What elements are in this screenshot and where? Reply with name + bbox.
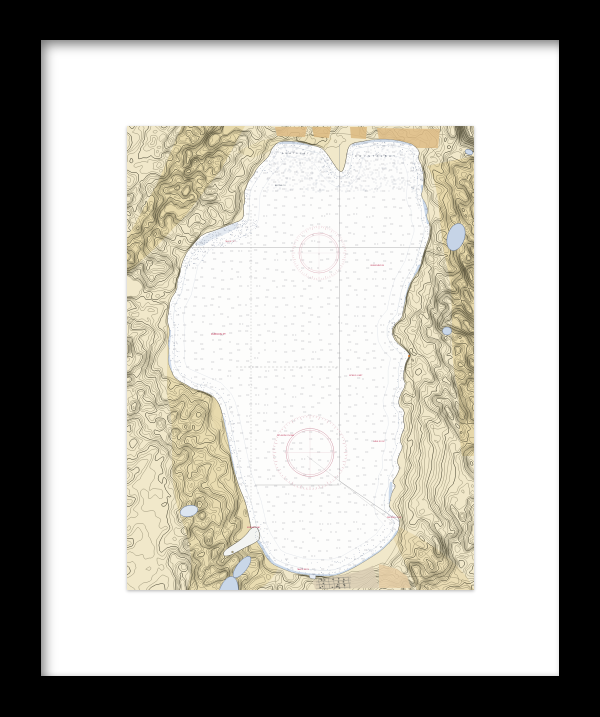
svg-text:OBSERVATION: OBSERVATION [370, 264, 385, 267]
svg-text:A G A T E B A Y: A G A T E B A Y [282, 152, 309, 155]
svg-text:C R Y S T A L B A Y: C R Y S T A L B A Y [355, 155, 396, 158]
svg-text:SPEED LIMIT: SPEED LIMIT [349, 375, 363, 377]
svg-text:TAHOE KEYS: TAHOE KEYS [297, 568, 310, 571]
svg-text:TAHOE CITY: TAHOE CITY [225, 240, 236, 243]
svg-text:EMERALD BAY: EMERALD BAY [247, 526, 261, 529]
svg-text:CAVE ROCK: CAVE ROCK [373, 440, 385, 443]
svg-text:RUBICON PT: RUBICON PT [211, 333, 226, 336]
svg-text:ALPINE CO: ALPINE CO [275, 184, 286, 187]
svg-text:ZEPHYR COVE: ZEPHYR COVE [387, 517, 402, 519]
svg-text:NO SKIN DIVING: NO SKIN DIVING [277, 435, 294, 437]
